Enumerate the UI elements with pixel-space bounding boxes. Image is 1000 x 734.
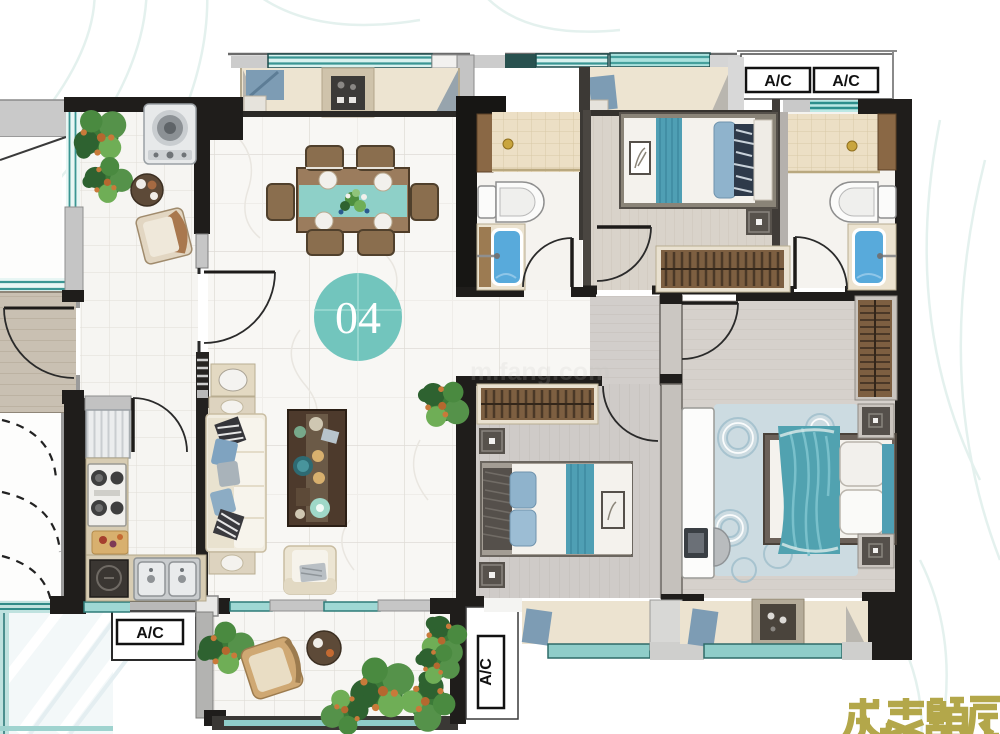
svg-text:04: 04 — [335, 292, 381, 343]
svg-text:A/C: A/C — [764, 73, 792, 90]
svg-text:A/C: A/C — [832, 73, 860, 90]
svg-text:m.fang.com: m.fang.com — [470, 358, 610, 386]
svg-text:A/C: A/C — [136, 625, 164, 642]
svg-text:A/C: A/C — [478, 658, 495, 686]
